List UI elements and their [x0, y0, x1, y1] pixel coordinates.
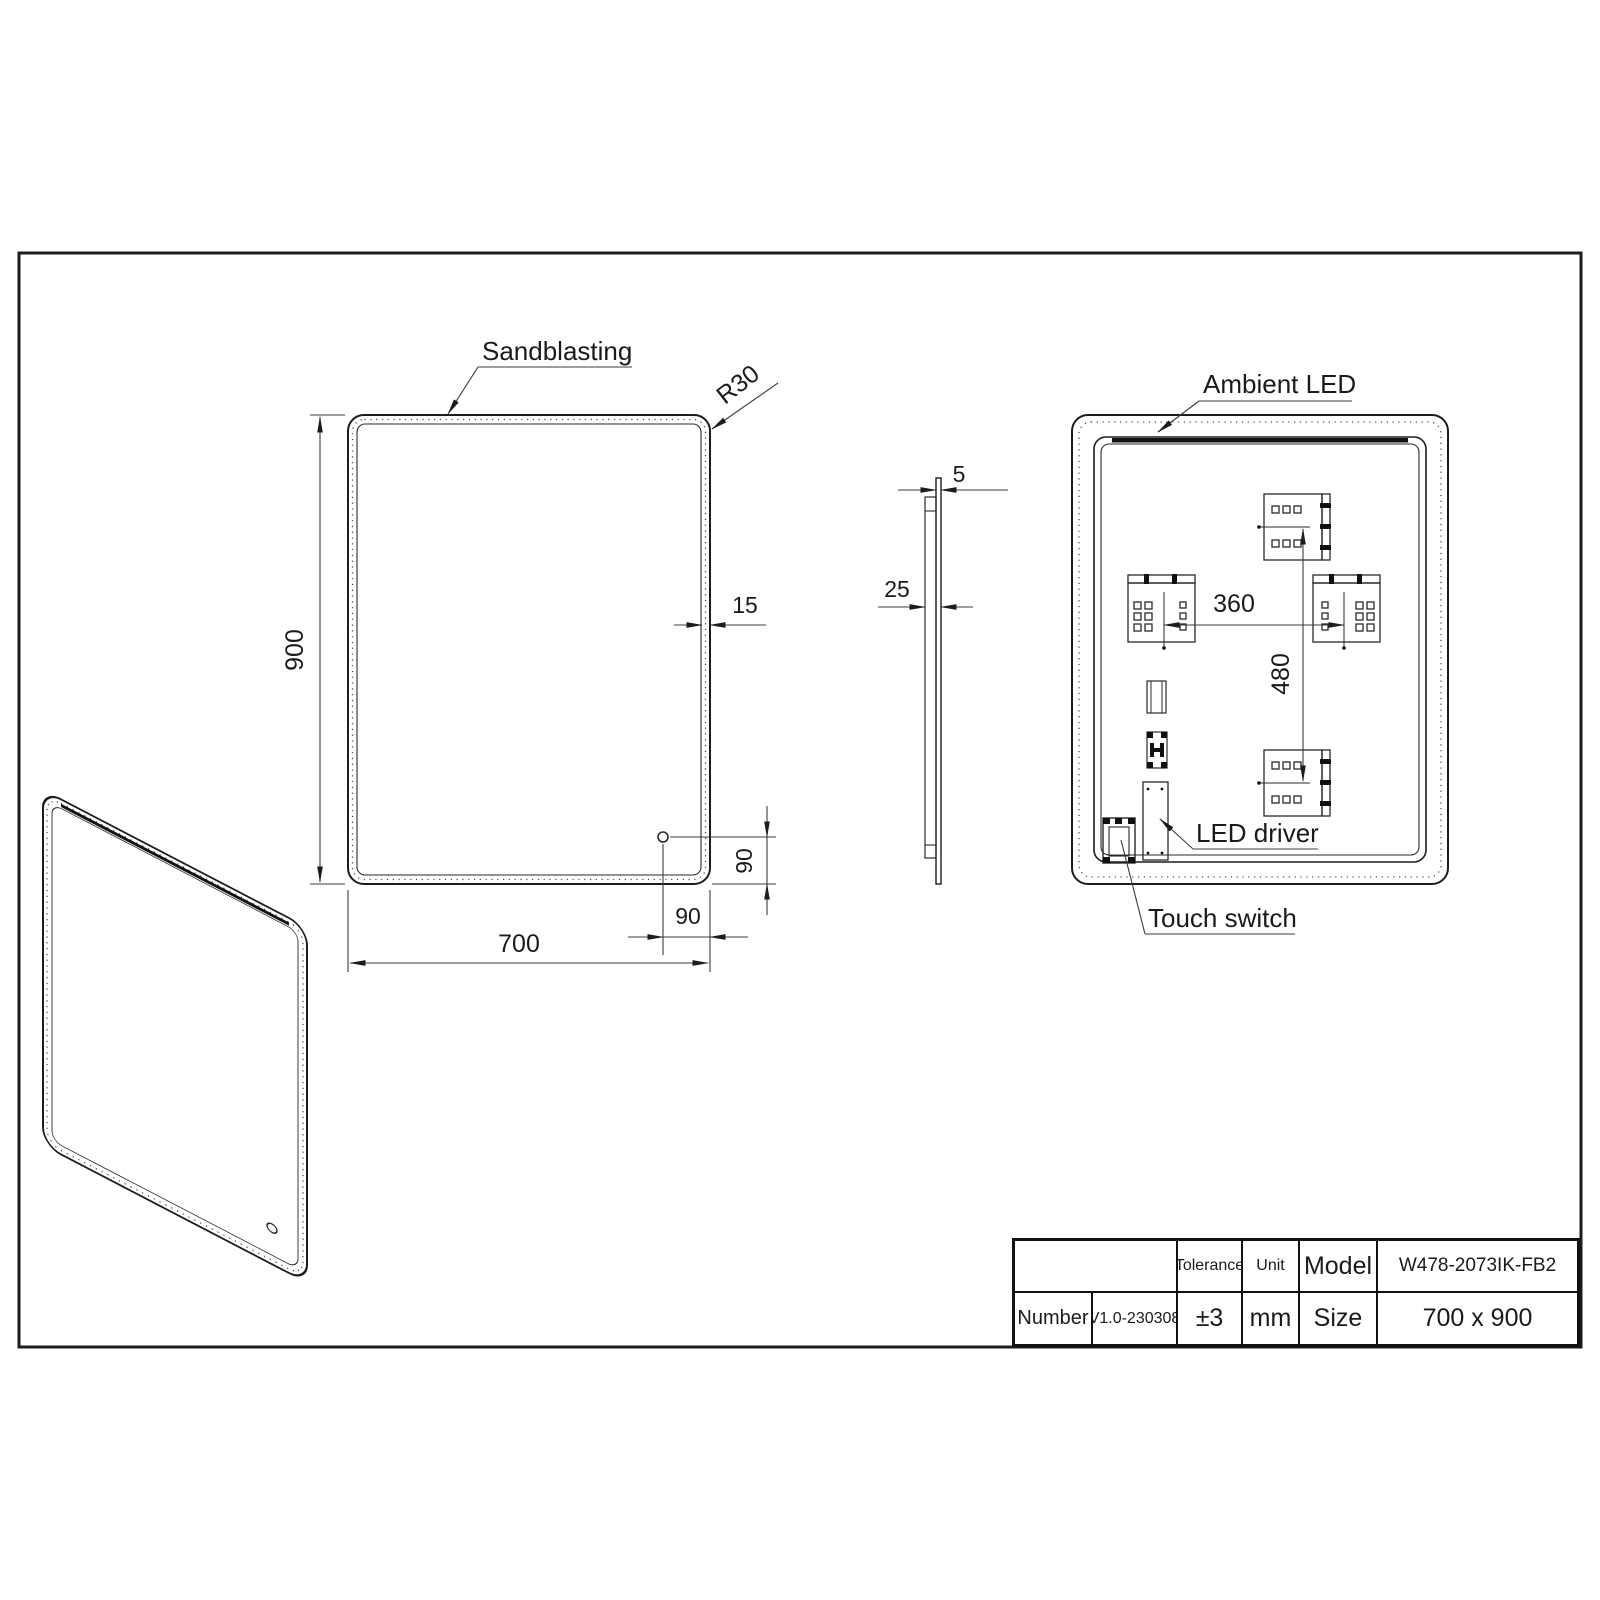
- front-view-dimensions: 900 700 15 90 90: [281, 415, 776, 972]
- rear-view: [1072, 415, 1448, 884]
- bracket-bottom: [1257, 750, 1331, 816]
- sandblasting-callout: Sandblasting: [448, 336, 632, 414]
- rear-sandblast-stipple: [1079, 422, 1441, 877]
- drawing-sheet: 900 700 15 90 90: [0, 0, 1600, 1600]
- glass-thickness-dim: 5: [953, 461, 966, 487]
- model-header: Model: [1300, 1241, 1378, 1293]
- number-value: V1.0-230308: [1093, 1293, 1178, 1344]
- title-block: Tolerance Unit Model W478-2073IK-FB2 Num…: [1012, 1238, 1580, 1347]
- title-block-empty-cell: [1015, 1241, 1178, 1293]
- bracket-spacing-h-dim: 360: [1213, 590, 1255, 618]
- iso-led-edge: [61, 805, 289, 924]
- sensor-offset-x-dim: 90: [675, 903, 701, 929]
- front-sandblast-stipple: [353, 420, 706, 880]
- rear-components: [1103, 681, 1168, 863]
- touch-switch-label: Touch switch: [1148, 903, 1297, 933]
- ambient-led-label: Ambient LED: [1203, 369, 1356, 399]
- back-frame-profile: [925, 497, 936, 858]
- glass-profile: [936, 478, 941, 884]
- led-driver-label: LED driver: [1196, 818, 1319, 848]
- touch-switch-box: [1103, 818, 1135, 863]
- bracket-spacing-v-dim: 480: [1267, 653, 1295, 695]
- bracket-right: [1313, 574, 1380, 650]
- led-strip-top: [1112, 438, 1408, 443]
- front-height-dim: 900: [281, 629, 309, 671]
- front-width-dim: 700: [498, 930, 540, 958]
- touch-sensor-dot: [658, 832, 668, 842]
- rear-view-dimensions: 360 480: [1164, 529, 1344, 781]
- iso-touch-sensor-dot: [267, 1221, 277, 1235]
- number-header: Number: [1015, 1293, 1093, 1344]
- isometric-view: [43, 790, 307, 1282]
- size-value: 700 x 900: [1378, 1293, 1577, 1344]
- sheet-border: [19, 253, 1581, 1347]
- model-value: W478-2073IK-FB2: [1378, 1241, 1577, 1293]
- total-depth-dim: 25: [884, 576, 910, 602]
- terminal-block: [1147, 732, 1167, 768]
- led-driver-callout: LED driver: [1160, 818, 1319, 849]
- frost-band-dim: 15: [732, 592, 758, 618]
- tolerance-value: ±3: [1178, 1293, 1243, 1344]
- unit-value: mm: [1243, 1293, 1300, 1344]
- tolerance-header: Tolerance: [1178, 1241, 1243, 1293]
- connector-block: [1147, 681, 1166, 713]
- bracket-top: [1257, 494, 1331, 560]
- sensor-offset-y-dim: 90: [731, 848, 757, 874]
- led-driver-box: [1143, 782, 1168, 860]
- corner-radius-callout: R30: [711, 360, 778, 429]
- unit-header: Unit: [1243, 1241, 1300, 1293]
- technical-drawing: 900 700 15 90 90: [0, 0, 1600, 1600]
- ambient-led-frame: [1094, 437, 1426, 862]
- sandblasting-label: Sandblasting: [482, 336, 632, 366]
- corner-radius-label: R30: [711, 360, 764, 410]
- size-header: Size: [1300, 1293, 1378, 1344]
- bracket-left: [1128, 574, 1195, 650]
- ambient-led-callout: Ambient LED: [1158, 369, 1356, 432]
- side-view: 5 25: [878, 461, 1008, 884]
- front-view: [348, 415, 710, 884]
